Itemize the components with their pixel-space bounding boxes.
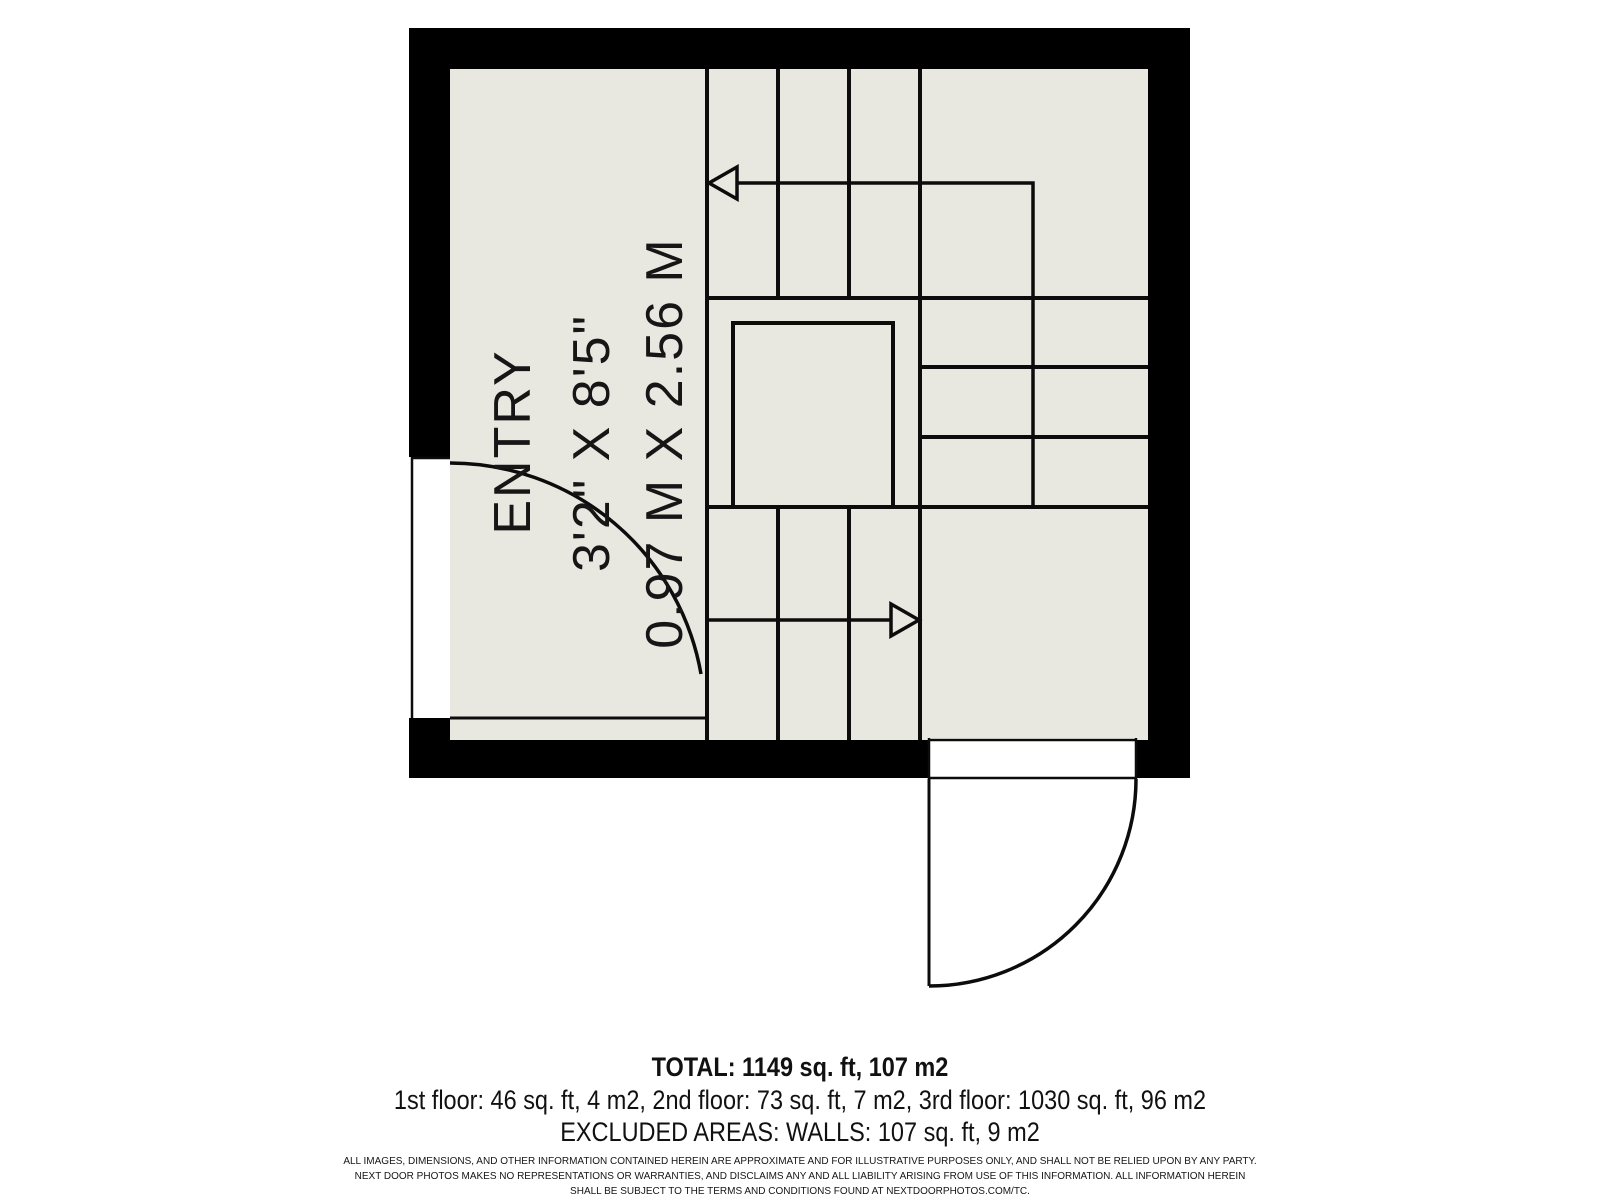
wall-top — [409, 28, 1190, 69]
disclaimer-line-1: ALL IMAGES, DIMENSIONS, AND OTHER INFORM… — [0, 1154, 1600, 1169]
door-opening — [407, 457, 450, 718]
door-swing-arc — [929, 779, 1136, 986]
wall-bottom-corner — [1137, 740, 1190, 778]
room-name-label: ENTRY — [484, 349, 542, 534]
room-dimensions-imperial: 3'2" X 8'5" — [563, 314, 621, 572]
exterior-door — [928, 738, 1137, 986]
disclaimer-line-2: NEXT DOOR PHOTOS MAKES NO REPRESENTATION… — [0, 1169, 1600, 1184]
door-opening — [928, 738, 1137, 780]
wall-bottom-left — [409, 740, 928, 778]
disclaimer-text: ALL IMAGES, DIMENSIONS, AND OTHER INFORM… — [0, 1154, 1600, 1199]
floor-area — [450, 69, 1148, 740]
room-dimensions-metric: 0.97 M X 2.56 M — [636, 237, 694, 649]
disclaimer-line-3: SHALL BE SUBJECT TO THE TERMS AND CONDIT… — [0, 1184, 1600, 1199]
wall-left-upper — [409, 28, 450, 457]
floorplan-drawing: ENTRY 3'2" X 8'5" 0.97 M X 2.56 M — [0, 0, 1600, 1200]
floorplan-page: ENTRY 3'2" X 8'5" 0.97 M X 2.56 M TOTAL:… — [0, 0, 1600, 1200]
excluded-areas-line: EXCLUDED AREAS: WALLS: 107 sq. ft, 9 m2 — [104, 1116, 1496, 1148]
floor-areas-line: 1st floor: 46 sq. ft, 4 m2, 2nd floor: 7… — [104, 1084, 1496, 1116]
total-area-line: TOTAL: 1149 sq. ft, 107 m2 — [104, 1050, 1496, 1084]
wall-right — [1148, 28, 1190, 778]
area-summary: TOTAL: 1149 sq. ft, 107 m2 1st floor: 46… — [0, 1050, 1600, 1199]
